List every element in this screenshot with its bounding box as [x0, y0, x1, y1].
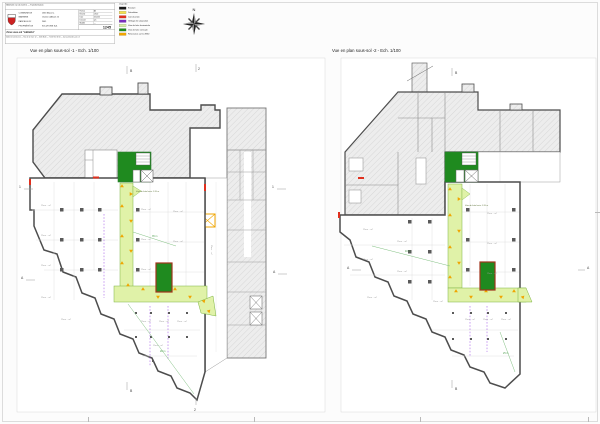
legend-swatch-icon — [119, 15, 126, 18]
plan2-title: Vue en plan sous-sol -2 - Ech. 1/100 — [332, 48, 532, 53]
drawing-sheet: Bâtiment rue du Centre — Transformation … — [0, 0, 600, 424]
compass-rose-icon: N — [181, 6, 207, 38]
info-value: — — [93, 22, 112, 25]
protected-room — [480, 262, 495, 290]
svg-text:Place ·· m²: Place ·· m² — [363, 228, 373, 231]
plan1-title: Vue en plan sous-sol -1 - Ech. 1/100 — [30, 48, 230, 53]
legend-swatch-icon — [119, 20, 126, 23]
stair-treads — [136, 153, 150, 165]
svg-text:Place ·· m²: Place ·· m² — [141, 268, 151, 271]
svg-text:Place ·· m²: Place ·· m² — [487, 272, 497, 275]
protected-room — [156, 263, 172, 292]
legend-swatch-icon — [119, 33, 126, 36]
roof-vent — [138, 83, 148, 94]
legend-label: Grillage de séparation — [128, 20, 148, 22]
svg-text:Place ·· m²: Place ·· m² — [41, 264, 51, 267]
roof-vent — [100, 87, 112, 95]
fold-mark — [420, 417, 421, 422]
fold-mark — [88, 417, 89, 422]
stairwell — [118, 152, 153, 182]
svg-text:Place ·· m²: Place ·· m² — [487, 242, 497, 245]
shaft — [416, 158, 426, 184]
svg-text:Place ·· m²: Place ·· m² — [41, 296, 51, 299]
fold-mark — [595, 212, 600, 213]
grid-marker-2-top: 2 — [198, 67, 200, 71]
svg-text:Place ·· m²: Place ·· m² — [173, 210, 183, 213]
svg-text:Place ·· m²: Place ·· m² — [41, 204, 51, 207]
legend-label: Voie de fuite horizontale — [128, 24, 150, 26]
svg-text:Place ·· m²: Place ·· m² — [487, 212, 497, 215]
shaft — [133, 170, 140, 182]
legend-label: Démolition — [128, 11, 138, 13]
technical-room — [349, 190, 361, 203]
grid-marker-1-left: 1 — [19, 185, 21, 189]
svg-text:Place ·· m²: Place ·· m² — [210, 245, 213, 255]
route-distance: 40 m — [405, 250, 410, 253]
org-value: SOLUTIONS S.A. — [42, 24, 78, 28]
stairwell-2 — [445, 152, 478, 182]
svg-text:Place ·· m²: Place ·· m² — [159, 320, 169, 323]
legend-swatch-icon — [119, 11, 126, 14]
fold-mark — [254, 417, 255, 422]
legend-swatch-icon — [119, 7, 126, 10]
route-distance: 35 m — [152, 235, 157, 238]
svg-text:Place ·· m²: Place ·· m² — [501, 318, 511, 321]
corridor-label: Voie de fuite horiz. 1.20 m — [136, 190, 159, 193]
legend-label: Existant — [128, 7, 135, 9]
route-distance: 28 m — [160, 350, 165, 353]
svg-text:Place ·· m²: Place ·· m² — [41, 234, 51, 237]
svg-text:Place ·· m²: Place ·· m² — [153, 344, 163, 347]
shaft — [456, 170, 464, 182]
compass-north-label: N — [193, 7, 196, 12]
roof-vent — [462, 84, 474, 92]
technical-room — [349, 158, 363, 171]
roof-vent — [510, 104, 522, 110]
legend-label: Résistance au feu EI30 — [128, 33, 149, 35]
drawing-number: 1245 — [79, 25, 112, 31]
elevator-icon — [250, 312, 262, 325]
owner-labels: COMMUNE DE MARSENS PARCELLE N° PROPRIÉTÉ… — [18, 10, 41, 30]
plan-sous-sol-1: Voie de fuite horiz. 1.20 m — [14, 56, 328, 418]
svg-text:Place ·· m²: Place ·· m² — [433, 300, 443, 303]
legend-title: Légende — [119, 3, 179, 5]
inner-corridor — [244, 152, 251, 257]
owner-values: 1633 Marsens Chemin d'Amont 25 2441 SOLU… — [41, 10, 78, 30]
legend-swatch-icon — [119, 24, 126, 27]
legend-swatch-icon — [119, 28, 126, 31]
info-label: Modifié — [79, 22, 93, 25]
org-label: PROPRIÉTÉ DE — [19, 24, 41, 28]
legend-label: Voie de fuite verticale — [128, 29, 148, 31]
svg-text:Place ·· m²: Place ·· m² — [61, 318, 71, 321]
title-block: Bâtiment rue du Centre — Transformation … — [5, 3, 115, 44]
legend: Légende Existant Démolition Construction… — [119, 3, 179, 45]
svg-text:Place ·· m²: Place ·· m² — [367, 296, 377, 299]
legend-label: Construction — [128, 16, 140, 18]
architect-footer: Atelier d'architecture — Rue de la Gare … — [5, 35, 114, 39]
svg-text:Place ·· m²: Place ·· m² — [397, 270, 407, 273]
fold-mark — [588, 417, 589, 422]
terrace-strip — [478, 152, 560, 182]
svg-text:Place ·· m²: Place ·· m² — [141, 208, 151, 211]
svg-text:Place ·· m²: Place ·· m² — [173, 240, 183, 243]
grid-marker-2-bottom: 2 — [194, 408, 196, 412]
svg-text:Place ·· m²: Place ·· m² — [177, 320, 187, 323]
elevator-icon — [250, 296, 262, 309]
svg-text:Place ·· m²: Place ·· m² — [465, 318, 475, 321]
drawing-info-table: FormatA3 Échelle1/100 Date05.2015 Dessin… — [79, 10, 113, 30]
svg-text:Place ·· m²: Place ·· m² — [397, 240, 407, 243]
svg-text:Place ·· m²: Place ·· m² — [363, 258, 373, 261]
grid-marker-1-right: 1 — [272, 185, 274, 189]
stair-treads — [462, 153, 476, 165]
route-distance: 25 m — [503, 352, 508, 355]
svg-text:Place ·· m²: Place ·· m² — [141, 238, 151, 241]
coat-of-arms-icon — [5, 10, 18, 30]
elevator-icon — [141, 170, 153, 182]
elevator-icon — [465, 170, 478, 182]
corridor-label: Voie de fuite horiz. 1.20 m — [465, 204, 488, 207]
legend-item: Résistance au feu EI30 — [119, 32, 179, 36]
svg-text:Place ·· m²: Place ·· m² — [141, 320, 151, 323]
existing-building-right — [227, 108, 266, 358]
svg-text:Place ·· m²: Place ·· m² — [483, 318, 493, 321]
plan-sous-sol-2: Voie de fuite horiz. 1.20 m — [338, 56, 599, 418]
technical-room — [85, 150, 117, 178]
